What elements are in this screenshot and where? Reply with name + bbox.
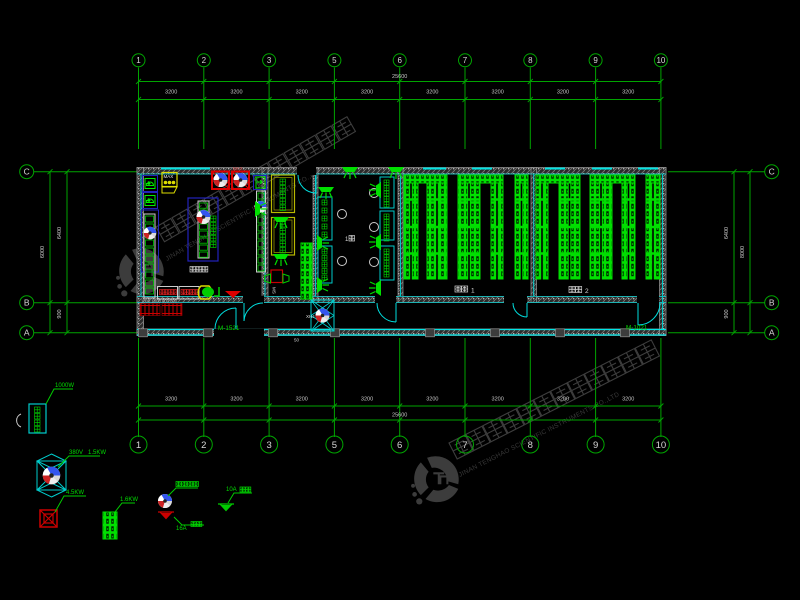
svg-text:3200: 3200 [557, 397, 569, 403]
svg-text:5: 5 [332, 440, 337, 451]
svg-text:B: B [769, 298, 775, 308]
svg-text:3200: 3200 [426, 90, 438, 96]
svg-text:C: C [769, 167, 775, 177]
svg-text:3200: 3200 [622, 90, 634, 96]
svg-text:JINAN TENGHAO SCIENTIFIC INSTR: JINAN TENGHAO SCIENTIFIC INSTRUMENTS CO.… [458, 391, 621, 479]
svg-text:2: 2 [201, 440, 206, 451]
svg-text:6400: 6400 [724, 227, 730, 239]
svg-text:MS: MS [272, 287, 277, 294]
svg-text:3200: 3200 [361, 90, 373, 96]
svg-text:900: 900 [724, 309, 730, 318]
svg-text:1: 1 [136, 56, 141, 65]
svg-text:7: 7 [463, 56, 468, 65]
svg-text:16A: 16A [176, 526, 187, 532]
svg-text:3200: 3200 [296, 90, 308, 96]
svg-text:3200: 3200 [622, 397, 634, 403]
svg-text:2: 2 [202, 56, 207, 65]
svg-text:3200: 3200 [296, 397, 308, 403]
svg-text:5: 5 [332, 56, 337, 65]
svg-text:XHJ: XHJ [306, 314, 315, 319]
svg-text:9: 9 [593, 440, 598, 451]
svg-text:1000 1000 600 800: 1000 1000 600 800 [141, 299, 178, 304]
svg-text:25600: 25600 [392, 413, 407, 419]
svg-text:3200: 3200 [492, 90, 504, 96]
svg-text:10A: 10A [226, 487, 237, 493]
svg-text:M-1021: M-1021 [626, 325, 648, 332]
svg-text:4.5KW: 4.5KW [66, 490, 84, 496]
svg-text:380V: 380V [69, 450, 83, 456]
svg-text:900: 900 [57, 309, 63, 318]
svg-text:MAX: MAX [164, 174, 174, 179]
svg-text:25600: 25600 [392, 74, 407, 80]
svg-text:2: 2 [585, 288, 589, 295]
svg-text:1.5KW: 1.5KW [88, 450, 106, 456]
svg-text:3200: 3200 [361, 397, 373, 403]
svg-text:9: 9 [593, 56, 598, 65]
svg-text:A: A [24, 328, 30, 338]
svg-text:MAX: MAX [233, 166, 243, 171]
svg-text:6400: 6400 [57, 227, 63, 239]
svg-text:3: 3 [266, 440, 271, 451]
svg-text:6: 6 [397, 440, 402, 451]
svg-text:10: 10 [656, 56, 665, 65]
svg-text:C: C [24, 167, 30, 177]
svg-text:3200: 3200 [165, 90, 177, 96]
svg-text:M-1521: M-1521 [218, 325, 240, 332]
svg-text:8000: 8000 [740, 246, 746, 258]
svg-text:50: 50 [294, 338, 300, 343]
svg-text:8: 8 [528, 440, 533, 451]
svg-text:1: 1 [136, 440, 141, 451]
svg-text:10: 10 [656, 440, 667, 451]
svg-text:3: 3 [267, 56, 272, 65]
svg-text:3200: 3200 [557, 90, 569, 96]
svg-text:3200: 3200 [165, 397, 177, 403]
svg-text:8: 8 [528, 56, 533, 65]
svg-text:1.6KW: 1.6KW [120, 497, 138, 503]
svg-text:1000W: 1000W [55, 383, 74, 389]
svg-text:B: B [24, 298, 30, 308]
svg-text:6000: 6000 [40, 246, 46, 258]
svg-text:6: 6 [397, 56, 402, 65]
svg-text:3200: 3200 [492, 397, 504, 403]
svg-text:3200: 3200 [230, 90, 242, 96]
svg-text:3200: 3200 [426, 397, 438, 403]
svg-text:3200: 3200 [230, 397, 242, 403]
svg-text:1: 1 [345, 237, 349, 243]
svg-text:1: 1 [471, 288, 475, 295]
svg-text:7: 7 [462, 440, 467, 451]
svg-text:A: A [769, 328, 775, 338]
